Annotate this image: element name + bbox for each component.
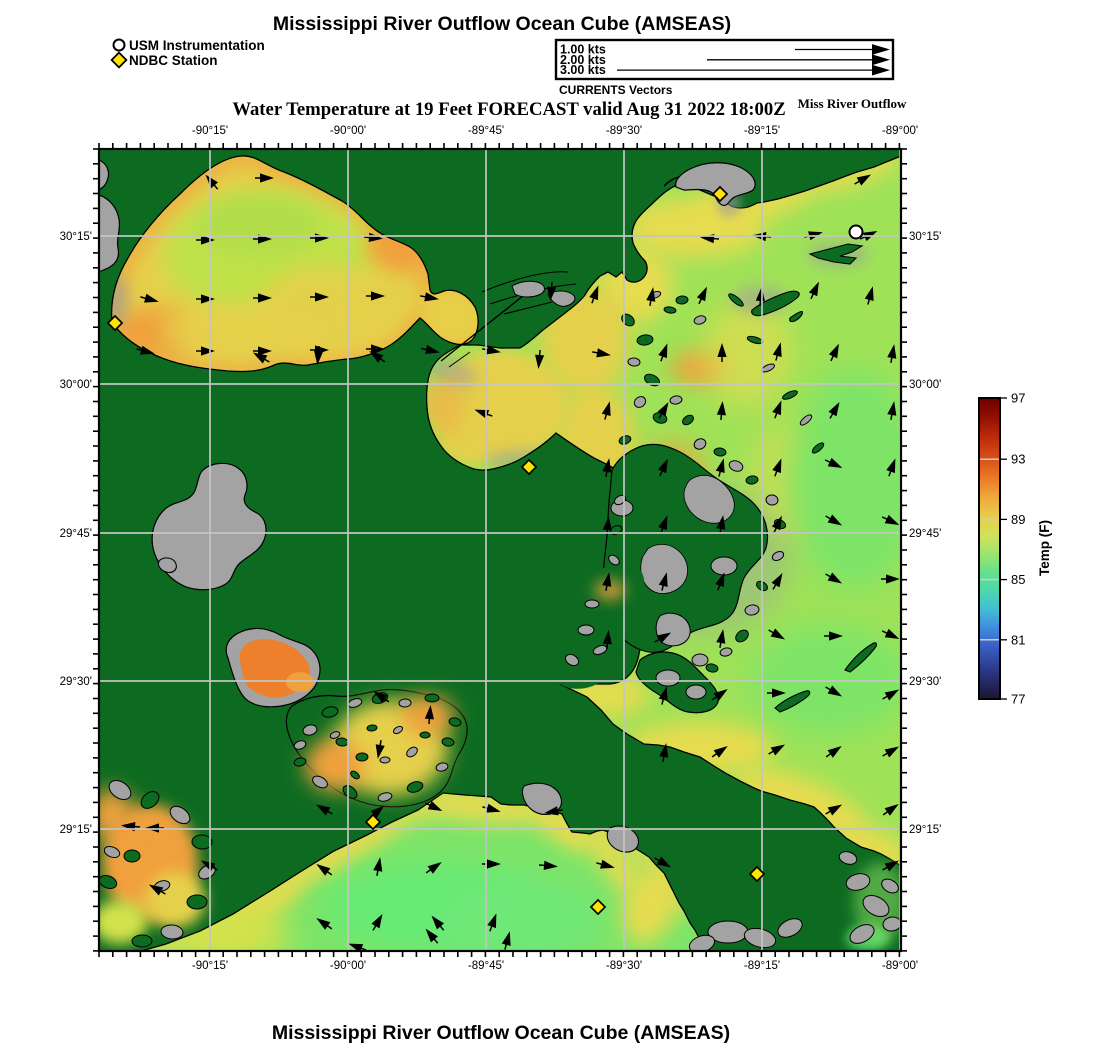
svg-text:-89°15': -89°15' (744, 125, 780, 137)
svg-text:81: 81 (1011, 632, 1025, 647)
svg-text:89: 89 (1011, 512, 1025, 527)
svg-text:29°15': 29°15' (60, 824, 92, 836)
svg-text:-90°00': -90°00' (330, 960, 366, 972)
svg-text:Temp (F): Temp (F) (1037, 520, 1052, 576)
svg-text:85: 85 (1011, 572, 1025, 587)
svg-text:-89°30': -89°30' (606, 125, 642, 137)
svg-text:97: 97 (1011, 391, 1025, 406)
svg-text:USM Instrumentation: USM Instrumentation (129, 38, 265, 53)
svg-text:Mississippi River Outflow Ocea: Mississippi River Outflow Ocean Cube (AM… (272, 1022, 730, 1044)
svg-text:-89°00': -89°00' (882, 125, 918, 137)
svg-text:93: 93 (1011, 452, 1025, 467)
svg-text:-89°45': -89°45' (468, 125, 504, 137)
svg-text:30°15': 30°15' (60, 231, 92, 243)
svg-text:-89°15': -89°15' (744, 960, 780, 972)
svg-text:29°15': 29°15' (909, 824, 941, 836)
svg-text:29°30': 29°30' (909, 676, 941, 688)
svg-text:Mississippi River Outflow Ocea: Mississippi River Outflow Ocean Cube (AM… (273, 13, 731, 35)
svg-text:30°15': 30°15' (909, 231, 941, 243)
svg-text:29°30': 29°30' (60, 676, 92, 688)
svg-text:30°00': 30°00' (909, 379, 941, 391)
svg-text:Water Temperature at 19 Feet F: Water Temperature at 19 Feet FORECAST va… (232, 99, 785, 120)
svg-text:29°45': 29°45' (60, 528, 92, 540)
svg-text:-90°15': -90°15' (192, 960, 228, 972)
svg-text:-89°00': -89°00' (882, 960, 918, 972)
svg-text:29°45': 29°45' (909, 528, 941, 540)
svg-text:30°00': 30°00' (60, 379, 92, 391)
svg-text:CURRENTS Vectors: CURRENTS Vectors (559, 83, 673, 97)
svg-text:-90°15': -90°15' (192, 125, 228, 137)
svg-text:-89°45': -89°45' (468, 960, 504, 972)
svg-text:NDBC Station: NDBC Station (129, 53, 218, 68)
svg-text:Miss River Outflow: Miss River Outflow (798, 96, 907, 111)
svg-text:3.00 kts: 3.00 kts (560, 63, 606, 77)
svg-text:77: 77 (1011, 692, 1025, 707)
svg-text:-89°30': -89°30' (606, 960, 642, 972)
svg-text:-90°00': -90°00' (330, 125, 366, 137)
